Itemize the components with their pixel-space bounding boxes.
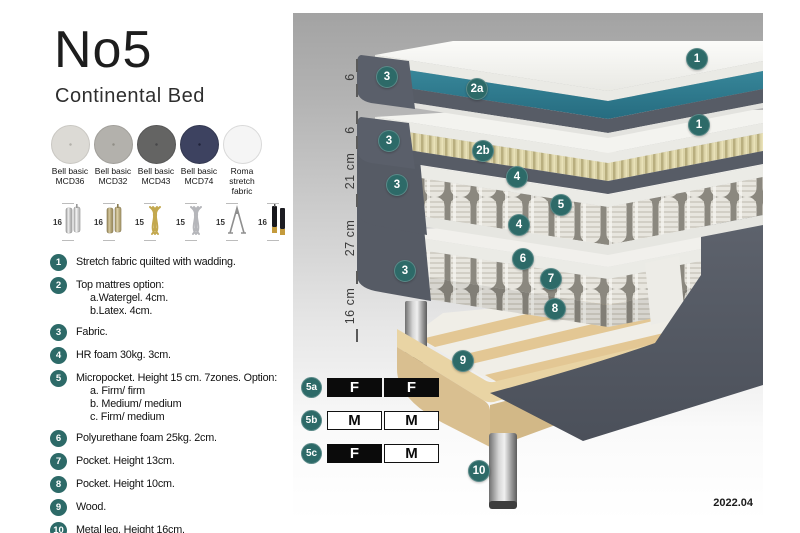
legend-item: 4HR foam 30kg. 3cm. [50, 347, 293, 364]
fabric-swatch-label: Bell basicMCD74 [179, 167, 219, 187]
legend-item: 3Fabric. [50, 324, 293, 341]
hairpin-leg-icon [226, 204, 248, 241]
firmness-cell: M [384, 411, 439, 430]
legend-sub-line: a. Firm/ firm [90, 385, 277, 398]
leg-option-body: 15 [135, 204, 165, 240]
black-gold-leg-icon [268, 204, 288, 241]
fabric-swatch: Romastretch fabric [222, 125, 262, 196]
legend-number-badge: 5 [50, 370, 67, 387]
diagram-badge: 2b [472, 140, 494, 162]
page-title: No5 [54, 24, 293, 76]
legend-sub-line: a.Watergel. 4cm. [90, 292, 168, 305]
leg-height-label: 16 [53, 218, 62, 227]
size-mark [103, 240, 115, 241]
front-metal-leg [489, 433, 517, 509]
diagram-badge: 3 [378, 130, 400, 152]
fabric-swatch-label: Bell basicMCD36 [50, 167, 90, 187]
size-mark [62, 240, 74, 241]
info-column: No5 Continental Bed Bell basicMCD36Bell … [0, 0, 293, 533]
fabric-swatch-label: Bell basicMCD32 [93, 167, 133, 187]
legend-number-badge: 4 [50, 347, 67, 364]
scale-tick [356, 271, 358, 284]
firmness-row-badge: 5c [301, 443, 322, 464]
size-mark [144, 240, 156, 241]
leg-option: 16 [48, 203, 88, 241]
firmness-row: 5bMM [301, 410, 439, 431]
scale-tick [356, 84, 358, 97]
firmness-cell: F [384, 378, 439, 397]
diagram-badge: 3 [376, 66, 398, 88]
scale-measurement-label: 6 [343, 126, 357, 133]
firmness-row-badge: 5b [301, 410, 322, 431]
fabric-swatch: Bell basicMCD32 [93, 125, 133, 196]
leg-option-body: 16 [258, 204, 288, 240]
leg-option-body: 15 [176, 204, 206, 240]
legend-item: 7Pocket. Height 13cm. [50, 453, 293, 470]
firmness-cell: F [327, 444, 382, 463]
legend-list: 1Stretch fabric quilted with wadding.2To… [50, 254, 293, 533]
fabric-swatch: Bell basicMCD74 [179, 125, 219, 196]
cylinder-brass-leg-icon [104, 204, 124, 241]
firmness-row: 5aFF [301, 377, 439, 398]
legend-item: 1Stretch fabric quilted with wadding. [50, 254, 293, 271]
legend-number-badge: 8 [50, 476, 67, 493]
diagram-badge: 10 [468, 460, 490, 482]
diagram-badge: 7 [540, 268, 562, 290]
leg-option: 15 [171, 203, 211, 241]
leg-option: 15 [212, 203, 252, 241]
legend-text: Top mattres option:a.Watergel. 4cm.b.Lat… [76, 277, 168, 318]
fabric-swatch-label: Bell basicMCD43 [136, 167, 176, 187]
leg-option-body: 16 [53, 204, 83, 240]
scale-measurement-label: 21 cm [343, 153, 357, 190]
fabric-swatch-label: Romastretch fabric [222, 167, 262, 196]
firmness-row: 5cFM [301, 443, 439, 464]
diagram-badge: 1 [688, 114, 710, 136]
diagram-badge: 1 [686, 48, 708, 70]
leg-options-row: 161615151516 [48, 203, 293, 241]
diagram-badge: 8 [544, 298, 566, 320]
legend-number-badge: 6 [50, 430, 67, 447]
legend-text: Pocket. Height 10cm. [76, 476, 175, 493]
firmness-cells: FM [327, 444, 439, 463]
scale-tick [356, 59, 358, 72]
diagram-badge: 4 [506, 166, 528, 188]
firmness-cell: M [384, 444, 439, 463]
legend-item: 9Wood. [50, 499, 293, 516]
leg-height-label: 16 [258, 218, 267, 227]
cylinder-silver-leg-icon [63, 204, 83, 241]
leg-option-body: 15 [216, 204, 248, 240]
scale-tick [356, 329, 358, 342]
product-sheet: No5 Continental Bed Bell basicMCD36Bell … [0, 0, 800, 533]
legend-text: Pocket. Height 13cm. [76, 453, 175, 470]
legend-item: 8Pocket. Height 10cm. [50, 476, 293, 493]
legend-text-line: Top mattres option: [76, 279, 168, 292]
scale-measurement-label: 27 cm [343, 220, 357, 257]
size-mark [267, 240, 279, 241]
diagram-badge: 4 [508, 214, 530, 236]
fabric-swatch-icon [94, 125, 133, 164]
legend-text: HR foam 30kg. 3cm. [76, 347, 171, 364]
fabric-swatch-icon [223, 125, 262, 164]
diagram-badge: 5 [550, 194, 572, 216]
legend-item: 5Micropocket. Height 15 cm. 7zones. Opti… [50, 370, 293, 424]
size-mark [226, 240, 238, 241]
legend-text-line: Pocket. Height 10cm. [76, 478, 175, 491]
legend-number-badge: 2 [50, 277, 67, 294]
diagram-badge: 6 [512, 248, 534, 270]
legend-text: Fabric. [76, 324, 108, 341]
legend-text: Stretch fabric quilted with wadding. [76, 254, 236, 271]
legend-item: 2Top mattres option:a.Watergel. 4cm.b.La… [50, 277, 293, 318]
legend-sub-line: b.Latex. 4cm. [90, 305, 168, 318]
twist-silver-leg-icon [186, 204, 206, 241]
legend-text: Polyurethane foam 25kg. 2cm. [76, 430, 217, 447]
legend-text-line: Pocket. Height 13cm. [76, 455, 175, 468]
fabric-swatch-icon [180, 125, 219, 164]
leg-option: 15 [130, 203, 170, 241]
diagram-badge: 3 [386, 174, 408, 196]
legend-item: 10Metal leg. Height 16cm. [50, 522, 293, 533]
size-mark [185, 240, 197, 241]
fabric-swatch-icon [51, 125, 90, 164]
legend-text-line: Micropocket. Height 15 cm. 7zones. Optio… [76, 372, 277, 385]
scale-measurement-label: 16 cm [343, 288, 357, 325]
scale-tick [356, 111, 358, 124]
firmness-row-badge: 5a [301, 377, 322, 398]
legend-number-badge: 7 [50, 453, 67, 470]
fabric-swatch-row: Bell basicMCD36Bell basicMCD32Bell basic… [50, 125, 293, 196]
legend-text-line: Metal leg. Height 16cm. [76, 524, 185, 533]
leg-option: 16 [253, 203, 293, 241]
page-subtitle: Continental Bed [55, 85, 293, 108]
legend-text-line: Stretch fabric quilted with wadding. [76, 256, 236, 269]
legend-item: 6Polyurethane foam 25kg. 2cm. [50, 430, 293, 447]
fabric-swatch: Bell basicMCD43 [136, 125, 176, 196]
legend-text: Wood. [76, 499, 106, 516]
twist-gold-leg-icon [145, 204, 165, 241]
diagram-badge: 2a [466, 78, 488, 100]
legend-number-badge: 1 [50, 254, 67, 271]
scale-tick [356, 136, 358, 149]
legend-text-line: Wood. [76, 501, 106, 514]
scale-tick [356, 194, 358, 207]
legend-number-badge: 10 [50, 522, 67, 533]
legend-sub-line: c. Firm/ medium [90, 411, 277, 424]
legend-text: Micropocket. Height 15 cm. 7zones. Optio… [76, 370, 277, 424]
firmness-cell: M [327, 411, 382, 430]
legend-number-badge: 9 [50, 499, 67, 516]
firmness-cell: F [327, 378, 382, 397]
legend-text-line: Polyurethane foam 25kg. 2cm. [76, 432, 217, 445]
firmness-cells: MM [327, 411, 439, 430]
legend-sub-line: b. Medium/ medium [90, 398, 277, 411]
leg-height-label: 15 [176, 218, 185, 227]
diagram-badge: 9 [452, 350, 474, 372]
legend-text: Metal leg. Height 16cm. [76, 522, 185, 533]
leg-option-body: 16 [94, 204, 124, 240]
scale-measurement-label: 6 [343, 73, 357, 80]
fabric-swatch: Bell basicMCD36 [50, 125, 90, 196]
legend-number-badge: 3 [50, 324, 67, 341]
leg-height-label: 16 [94, 218, 103, 227]
leg-option: 16 [89, 203, 129, 241]
fabric-swatch-icon [137, 125, 176, 164]
legend-text-line: HR foam 30kg. 3cm. [76, 349, 171, 362]
leg-height-label: 15 [135, 218, 144, 227]
legend-text-line: Fabric. [76, 326, 108, 339]
diagram-badge: 3 [394, 260, 416, 282]
firmness-cells: FF [327, 378, 439, 397]
leg-height-label: 15 [216, 218, 225, 227]
version-label: 2022.04 [713, 497, 753, 509]
diagram-panel: 6621 cm27 cm16 cm 12a312b345436783910 5a… [293, 13, 763, 521]
